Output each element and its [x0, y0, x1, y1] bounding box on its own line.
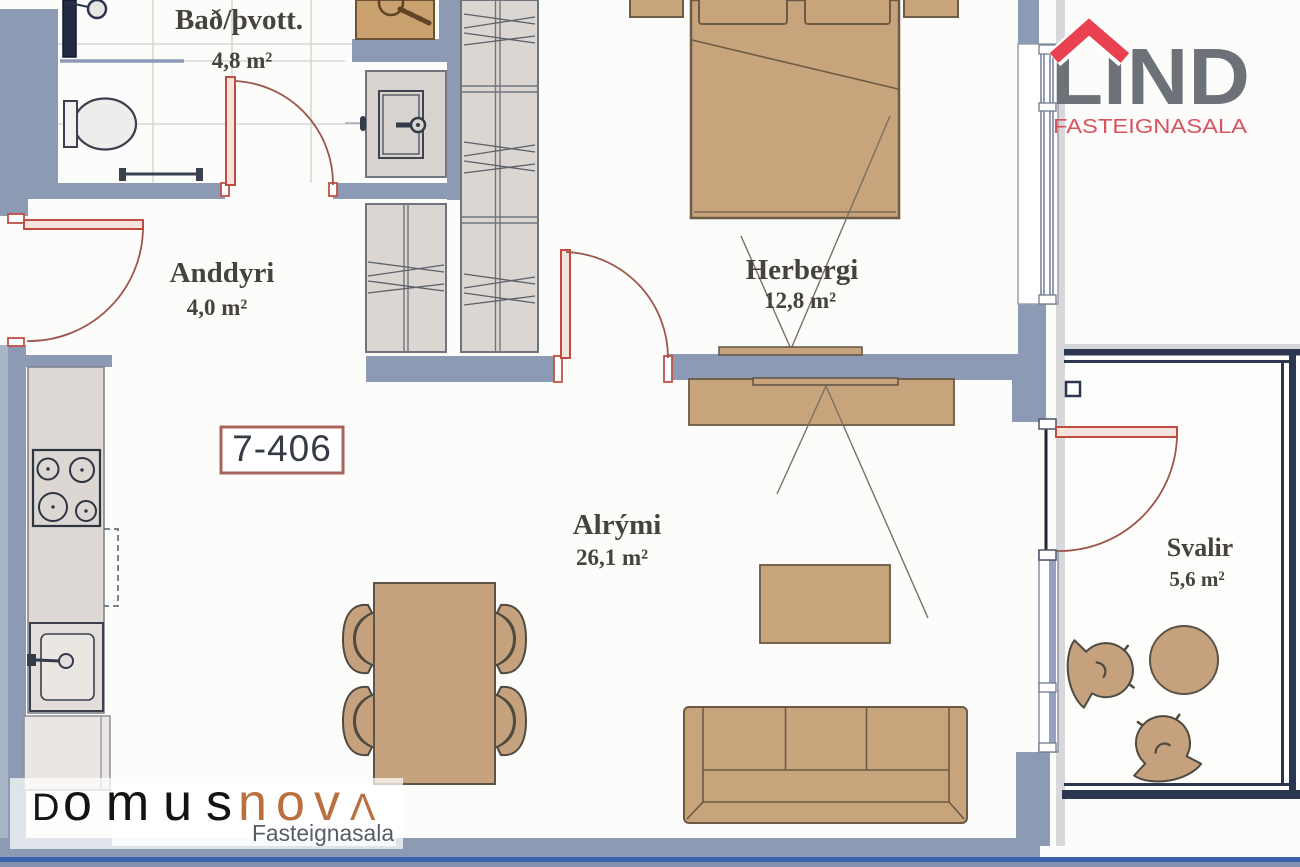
svg-text:omus: omus [63, 774, 232, 832]
svg-text:Bað/þvott.: Bað/þvott. [175, 4, 303, 36]
svg-text:7-406: 7-406 [232, 428, 332, 469]
svg-text:26,1 m²: 26,1 m² [576, 545, 648, 570]
svg-text:D: D [32, 787, 59, 829]
svg-text:Alrými: Alrými [573, 509, 662, 541]
svg-text:12,8 m²: 12,8 m² [764, 288, 836, 313]
svg-text:5,6 m²: 5,6 m² [1169, 567, 1224, 591]
svg-text:Anddyri: Anddyri [170, 257, 275, 289]
svg-text:4,0 m²: 4,0 m² [187, 295, 248, 320]
svg-text:Fasteignasala: Fasteignasala [252, 820, 394, 846]
svg-text:FASTEIGNASALA: FASTEIGNASALA [1053, 116, 1248, 138]
svg-text:Svalir: Svalir [1167, 533, 1233, 562]
svg-text:Herbergi: Herbergi [746, 254, 859, 286]
svg-text:4,8 m²: 4,8 m² [212, 48, 273, 73]
